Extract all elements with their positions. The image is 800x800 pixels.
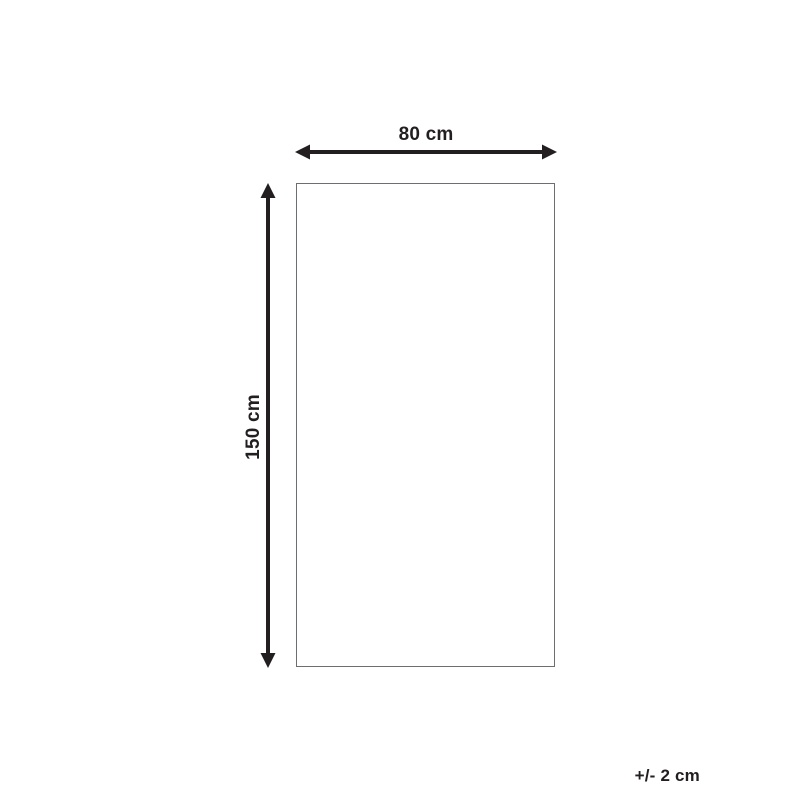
height-dimension-label: 150 cm <box>242 369 266 485</box>
width-arrow-icon <box>295 145 557 160</box>
product-outline-rectangle <box>296 183 555 667</box>
dimension-diagram: 80 cm 150 cm +/- 2 cm <box>0 0 800 800</box>
width-dimension-label: 80 cm <box>296 124 556 146</box>
tolerance-label: +/- 2 cm <box>600 766 700 786</box>
